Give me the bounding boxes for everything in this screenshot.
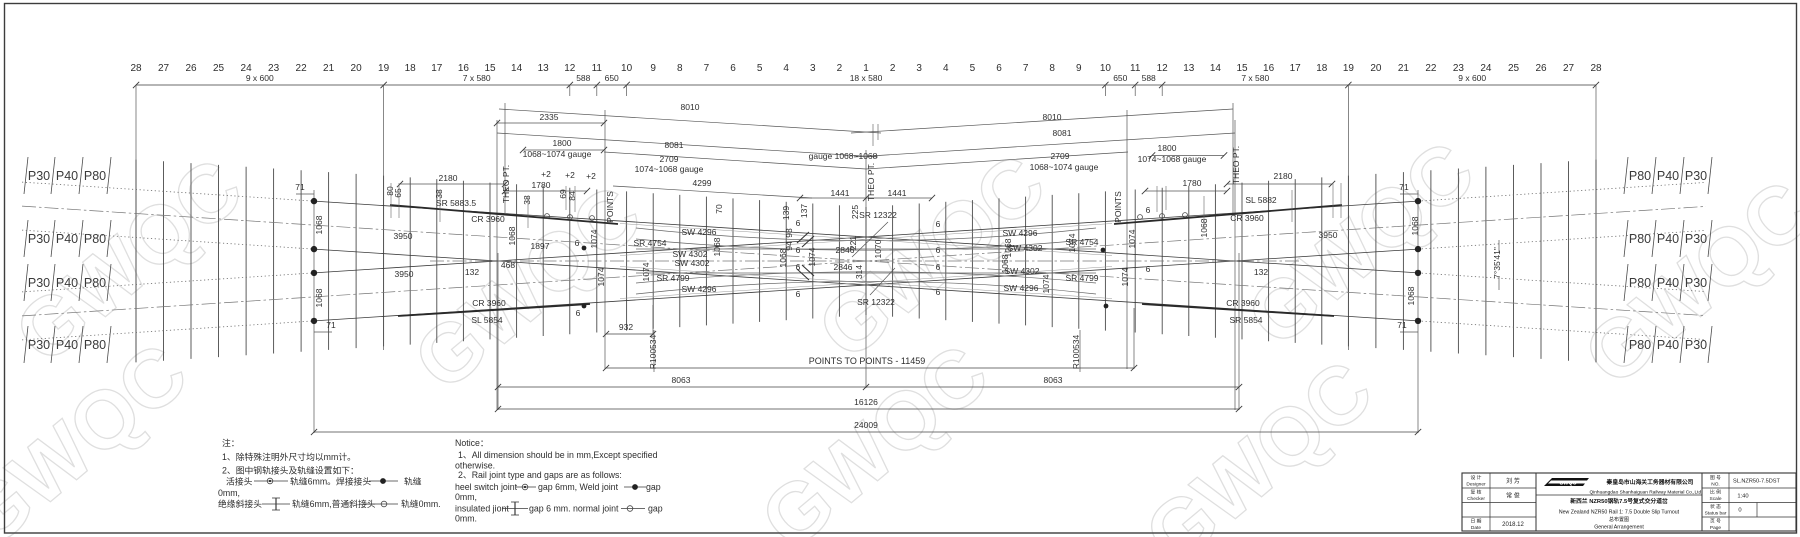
svg-text:28: 28 <box>1590 63 1602 74</box>
svg-text:轨缝6mm,普通斜接头: 轨缝6mm,普通斜接头 <box>292 498 376 509</box>
svg-text:常 俊: 常 俊 <box>1506 492 1520 500</box>
svg-text:139: 139 <box>781 206 791 220</box>
svg-text:SW 4296: SW 4296 <box>682 227 717 237</box>
svg-text:gap 6 mm. normal joint: gap 6 mm. normal joint <box>529 504 619 514</box>
svg-text:gauge 1068~1068: gauge 1068~1068 <box>809 151 878 161</box>
svg-text:221: 221 <box>848 236 858 250</box>
svg-text:21: 21 <box>323 63 335 74</box>
svg-text:1074: 1074 <box>589 229 599 248</box>
svg-text:1074: 1074 <box>1120 267 1130 286</box>
svg-text:CR 3960: CR 3960 <box>471 214 505 224</box>
svg-text:1074: 1074 <box>596 267 606 286</box>
svg-text:New Zealand NZR50 Rail 1: 7.5: New Zealand NZR50 Rail 1: 7.5 Double Sli… <box>1559 510 1680 516</box>
svg-text:468: 468 <box>501 260 515 270</box>
svg-text:总布置图: 总布置图 <box>1609 516 1629 523</box>
svg-text:P80: P80 <box>84 169 106 183</box>
svg-text:1068: 1068 <box>507 226 517 245</box>
svg-text:SR 12322: SR 12322 <box>859 210 897 220</box>
svg-text:R100534: R100534 <box>648 334 658 369</box>
svg-text:Status bar: Status bar <box>1705 511 1727 517</box>
svg-text:650: 650 <box>605 73 619 83</box>
svg-text:Scale: Scale <box>1710 496 1722 502</box>
svg-text:SR 4799: SR 4799 <box>1065 273 1098 283</box>
svg-text:1、All dimension should be in: 1、All dimension should be in mm,Except s… <box>458 450 658 460</box>
svg-text:SW 4302: SW 4302 <box>675 258 710 268</box>
svg-text:8: 8 <box>677 63 683 74</box>
svg-text:1800: 1800 <box>1158 143 1177 153</box>
svg-text:1068: 1068 <box>1410 216 1420 235</box>
svg-text:71: 71 <box>326 320 336 330</box>
svg-text:2709: 2709 <box>660 154 679 164</box>
svg-text:SR 4754: SR 4754 <box>633 238 666 248</box>
svg-text:5: 5 <box>757 63 763 74</box>
svg-text:26: 26 <box>1535 63 1547 74</box>
svg-text:GWQC: GWQC <box>1559 481 1576 487</box>
svg-text:7°35'41": 7°35'41" <box>1492 247 1502 279</box>
svg-text:gap: gap <box>648 504 663 514</box>
svg-text:13: 13 <box>1183 63 1195 74</box>
svg-text:2: 2 <box>890 63 896 74</box>
svg-text:1800: 1800 <box>553 138 572 148</box>
svg-text:3950: 3950 <box>394 231 413 241</box>
svg-text:POINTS: POINTS <box>605 191 615 223</box>
svg-text:2、图中钢轨接头及轨缝设置如下：: 2、图中钢轨接头及轨缝设置如下： <box>222 465 359 476</box>
svg-text:27: 27 <box>1563 63 1575 74</box>
svg-text:THEO PT.: THEO PT. <box>1231 146 1241 184</box>
svg-text:P80: P80 <box>1629 169 1651 183</box>
svg-text:P80: P80 <box>84 338 106 352</box>
svg-text:THEO PT.: THEO PT. <box>501 165 511 203</box>
svg-text:98: 98 <box>784 228 794 238</box>
svg-text:设 计: 设 计 <box>1471 474 1482 481</box>
svg-text:SW 4296: SW 4296 <box>1003 228 1038 238</box>
svg-text:P40: P40 <box>1657 232 1679 246</box>
svg-text:状 态: 状 态 <box>1710 503 1721 510</box>
svg-text:+2: +2 <box>541 169 551 179</box>
svg-text:11: 11 <box>592 63 603 74</box>
svg-text:17: 17 <box>431 63 443 74</box>
svg-text:1068: 1068 <box>712 237 722 256</box>
svg-text:84: 84 <box>567 191 577 201</box>
svg-text:CR 3960: CR 3960 <box>1230 213 1264 223</box>
svg-text:General Arrangement: General Arrangement <box>1594 525 1644 531</box>
svg-text:22: 22 <box>1425 63 1437 74</box>
svg-text:1:40: 1:40 <box>1737 494 1748 500</box>
svg-text:新西兰 NZR50钢轨7.5号复式交分道岔: 新西兰 NZR50钢轨7.5号复式交分道岔 <box>1570 497 1668 505</box>
svg-text:6: 6 <box>996 63 1002 74</box>
svg-text:otherwise.: otherwise. <box>455 461 495 471</box>
svg-text:9: 9 <box>650 63 656 74</box>
svg-text:8063: 8063 <box>672 375 691 385</box>
svg-text:22: 22 <box>296 63 308 74</box>
svg-text:P30: P30 <box>28 232 50 246</box>
svg-text:14: 14 <box>511 63 523 74</box>
svg-text:12: 12 <box>564 63 576 74</box>
svg-text:19: 19 <box>1343 63 1355 74</box>
svg-text:12: 12 <box>1157 63 1169 74</box>
svg-text:71: 71 <box>1397 320 1407 330</box>
svg-text:4: 4 <box>783 63 789 74</box>
svg-text:65: 65 <box>393 188 403 198</box>
svg-text:9 x 600: 9 x 600 <box>1458 73 1486 83</box>
svg-text:18 x 580: 18 x 580 <box>850 73 883 83</box>
svg-text:Notice：: Notice： <box>455 438 489 448</box>
svg-text:P40: P40 <box>56 276 78 290</box>
svg-text:1068~1074 gauge: 1068~1074 gauge <box>523 149 592 159</box>
svg-text:6: 6 <box>575 238 580 248</box>
svg-text:P30: P30 <box>1685 232 1707 246</box>
svg-text:图 号: 图 号 <box>1710 475 1721 481</box>
svg-text:P80: P80 <box>1629 338 1651 352</box>
svg-text:11: 11 <box>1130 63 1141 74</box>
svg-text:Checker: Checker <box>1467 496 1485 502</box>
svg-text:1068: 1068 <box>1000 254 1010 273</box>
svg-text:P40: P40 <box>1657 338 1679 352</box>
svg-text:3950: 3950 <box>1319 230 1338 240</box>
svg-text:25: 25 <box>1508 63 1520 74</box>
svg-text:13: 13 <box>538 63 550 74</box>
svg-text:P30: P30 <box>28 338 50 352</box>
svg-text:SR 4799: SR 4799 <box>656 273 689 283</box>
svg-text:132: 132 <box>1254 267 1268 277</box>
svg-text:P80: P80 <box>1629 232 1651 246</box>
svg-text:Designer: Designer <box>1466 482 1486 488</box>
svg-text:6: 6 <box>1146 205 1151 215</box>
svg-text:4299: 4299 <box>693 178 712 188</box>
svg-text:Date: Date <box>1471 525 1481 531</box>
svg-text:1897: 1897 <box>531 241 550 251</box>
svg-text:1441: 1441 <box>888 188 907 198</box>
svg-text:1074: 1074 <box>641 262 651 281</box>
svg-text:绝缘斜接头: 绝缘斜接头 <box>218 498 262 509</box>
svg-text:注：: 注： <box>222 437 240 448</box>
svg-text:1070: 1070 <box>873 239 883 258</box>
svg-text:秦皇岛市山海关工务器材有限公司: 秦皇岛市山海关工务器材有限公司 <box>1606 478 1694 486</box>
svg-text:P30: P30 <box>1685 276 1707 290</box>
svg-text:650: 650 <box>1113 73 1127 83</box>
svg-text:1068: 1068 <box>314 288 324 307</box>
svg-text:1068~1074 gauge: 1068~1074 gauge <box>1030 162 1099 172</box>
svg-text:P40: P40 <box>56 169 78 183</box>
svg-text:1441: 1441 <box>831 188 850 198</box>
svg-text:1068: 1068 <box>778 248 788 267</box>
svg-text:P40: P40 <box>56 338 78 352</box>
svg-text:1074: 1074 <box>1127 229 1137 248</box>
svg-text:7 x 580: 7 x 580 <box>1241 73 1269 83</box>
svg-text:复 核: 复 核 <box>1471 489 1482 496</box>
svg-text:0mm.: 0mm. <box>455 514 477 524</box>
svg-text:6: 6 <box>936 219 941 229</box>
svg-text:P30: P30 <box>1685 169 1707 183</box>
svg-text:18: 18 <box>1316 63 1328 74</box>
svg-text:CR 3960: CR 3960 <box>472 298 506 308</box>
svg-text:gap 6mm, Weld joint: gap 6mm, Weld joint <box>538 482 619 492</box>
svg-text:70: 70 <box>714 204 724 214</box>
svg-text:9 x 600: 9 x 600 <box>246 73 274 83</box>
svg-text:7 x 580: 7 x 580 <box>463 73 491 83</box>
svg-text:132: 132 <box>465 267 479 277</box>
svg-text:0mm,: 0mm, <box>218 488 240 498</box>
svg-text:heel switch joint: heel switch joint <box>455 482 518 492</box>
svg-text:1780: 1780 <box>1183 178 1202 188</box>
svg-text:7: 7 <box>704 63 710 74</box>
svg-text:1068: 1068 <box>1406 286 1416 305</box>
svg-text:gap: gap <box>646 482 661 492</box>
svg-text:17: 17 <box>1290 63 1302 74</box>
svg-text:588: 588 <box>1142 73 1156 83</box>
svg-text:8010: 8010 <box>1043 112 1062 122</box>
svg-text:2018.12: 2018.12 <box>1502 522 1524 528</box>
svg-text:轨缝6mm。焊接接头: 轨缝6mm。焊接接头 <box>290 476 371 487</box>
svg-text:1074: 1074 <box>1067 233 1077 252</box>
svg-text:比 例: 比 例 <box>1710 489 1721 496</box>
svg-text:P30: P30 <box>28 169 50 183</box>
svg-text:6: 6 <box>730 63 736 74</box>
svg-text:2、Rail joint type and gaps ar: 2、Rail joint type and gaps are as follow… <box>458 470 622 480</box>
svg-text:P40: P40 <box>56 232 78 246</box>
svg-text:10: 10 <box>621 63 633 74</box>
svg-text:6: 6 <box>796 262 801 272</box>
svg-text:2: 2 <box>837 63 843 74</box>
svg-text:SL 5882: SL 5882 <box>1245 195 1277 205</box>
svg-text:THEO PT.: THEO PT. <box>866 163 876 201</box>
svg-text:SW 4296: SW 4296 <box>1004 283 1039 293</box>
svg-text:3950: 3950 <box>395 269 414 279</box>
svg-text:insulated jiont: insulated jiont <box>455 504 509 514</box>
svg-text:1074: 1074 <box>1041 274 1051 293</box>
svg-text:R100534: R100534 <box>1071 334 1081 369</box>
svg-text:26: 26 <box>185 63 197 74</box>
svg-text:3: 3 <box>916 63 922 74</box>
svg-text:314: 314 <box>854 265 864 279</box>
svg-text:8081: 8081 <box>665 140 684 150</box>
svg-text:P30: P30 <box>1685 338 1707 352</box>
svg-text:6: 6 <box>936 245 941 255</box>
svg-text:1074~1068 gauge: 1074~1068 gauge <box>635 164 704 174</box>
svg-text:6: 6 <box>796 218 801 228</box>
svg-text:2709: 2709 <box>1051 151 1070 161</box>
svg-text:19: 19 <box>378 63 390 74</box>
svg-text:CR 3960: CR 3960 <box>1226 298 1260 308</box>
svg-text:SR 5854: SR 5854 <box>1229 315 1262 325</box>
svg-text:5: 5 <box>970 63 976 74</box>
svg-text:1074~1068 gauge: 1074~1068 gauge <box>1138 154 1207 164</box>
svg-text:28: 28 <box>130 63 142 74</box>
svg-text:20: 20 <box>351 63 363 74</box>
svg-text:Qinhuangdao Shanhaiguan Railwa: Qinhuangdao Shanhaiguan Railway Material… <box>1589 490 1702 496</box>
svg-text:2846: 2846 <box>834 262 853 272</box>
svg-text:2180: 2180 <box>439 173 458 183</box>
svg-text:27: 27 <box>158 63 170 74</box>
svg-text:6: 6 <box>1146 264 1151 274</box>
svg-text:+2: +2 <box>586 171 596 181</box>
svg-text:2180: 2180 <box>1274 171 1293 181</box>
svg-text:P30: P30 <box>28 276 50 290</box>
svg-text:P40: P40 <box>1657 276 1679 290</box>
svg-text:137: 137 <box>799 204 809 218</box>
svg-text:POINTS: POINTS <box>1113 191 1123 223</box>
svg-text:21: 21 <box>1398 63 1410 74</box>
svg-text:活接头: 活接头 <box>226 476 253 487</box>
svg-text:9: 9 <box>1076 63 1082 74</box>
svg-text:25: 25 <box>213 63 225 74</box>
svg-text:P40: P40 <box>1657 169 1679 183</box>
svg-text:6: 6 <box>576 308 581 318</box>
svg-text:7: 7 <box>1023 63 1029 74</box>
svg-text:1068: 1068 <box>314 215 324 234</box>
svg-text:日 期: 日 期 <box>1471 519 1482 525</box>
svg-text:3: 3 <box>810 63 816 74</box>
svg-text:POINTS TO POINTS - 11459: POINTS TO POINTS - 11459 <box>809 356 926 366</box>
svg-text:页 号: 页 号 <box>1710 519 1721 525</box>
svg-text:0mm,: 0mm, <box>455 492 477 502</box>
svg-text:20: 20 <box>1370 63 1382 74</box>
svg-text:1074: 1074 <box>807 247 817 266</box>
svg-text:6: 6 <box>796 289 801 299</box>
svg-text:4: 4 <box>943 63 949 74</box>
svg-text:588: 588 <box>576 73 590 83</box>
svg-text:10: 10 <box>1100 63 1112 74</box>
svg-text:轨缝0mm.: 轨缝0mm. <box>401 498 441 509</box>
svg-text:932: 932 <box>619 322 633 332</box>
svg-text:1780: 1780 <box>532 180 551 190</box>
svg-text:轨缝: 轨缝 <box>404 476 422 487</box>
svg-text:16126: 16126 <box>854 397 878 407</box>
svg-text:刘 芳: 刘 芳 <box>1506 477 1520 485</box>
svg-text:8063: 8063 <box>1044 375 1063 385</box>
svg-text:6: 6 <box>936 287 941 297</box>
svg-text:14: 14 <box>1210 63 1222 74</box>
svg-text:+2: +2 <box>565 170 575 180</box>
svg-text:8010: 8010 <box>681 102 700 112</box>
svg-text:71: 71 <box>1399 182 1409 192</box>
svg-text:8081: 8081 <box>1053 128 1072 138</box>
svg-text:P80: P80 <box>1629 276 1651 290</box>
svg-text:1、除特殊注明外尺寸均以mm计。: 1、除特殊注明外尺寸均以mm计。 <box>222 451 356 462</box>
svg-text:SL 5854: SL 5854 <box>471 315 503 325</box>
svg-text:71: 71 <box>295 182 305 192</box>
svg-text:0: 0 <box>1738 508 1741 514</box>
svg-text:8: 8 <box>1049 63 1055 74</box>
svg-text:18: 18 <box>405 63 417 74</box>
svg-text:6: 6 <box>936 262 941 272</box>
svg-text:SW 4296: SW 4296 <box>682 284 717 294</box>
svg-text:6: 6 <box>796 245 801 255</box>
svg-text:2335: 2335 <box>540 112 559 122</box>
svg-text:SL.NZR50-7.5DST: SL.NZR50-7.5DST <box>1733 479 1781 485</box>
svg-text:38: 38 <box>522 195 532 205</box>
svg-text:SR 12322: SR 12322 <box>857 297 895 307</box>
svg-text:38: 38 <box>434 189 444 199</box>
svg-text:Page: Page <box>1710 525 1722 531</box>
svg-text:24009: 24009 <box>854 420 878 430</box>
svg-text:NO.: NO. <box>1711 482 1720 488</box>
